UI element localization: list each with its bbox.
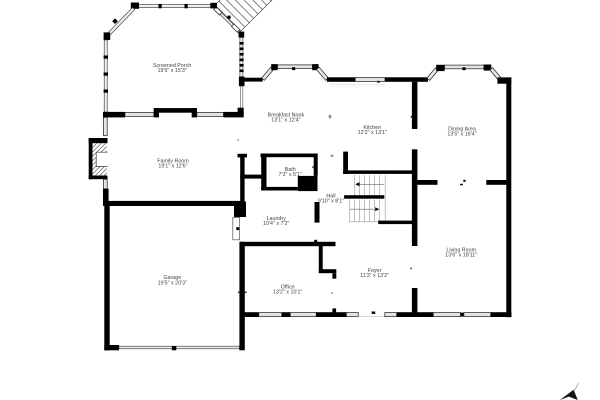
svg-text:19'5" x 20'3": 19'5" x 20'3" — [158, 280, 187, 286]
svg-text:13'2" x 10'1": 13'2" x 10'1" — [273, 289, 302, 295]
svg-text:7'3" x 5'1": 7'3" x 5'1" — [279, 172, 302, 178]
svg-text:10'4" x 7'2": 10'4" x 7'2" — [263, 221, 289, 227]
svg-text:12'2" x 13'1": 12'2" x 13'1" — [358, 130, 387, 136]
svg-text:13'1" x 12'4": 13'1" x 12'4" — [271, 117, 300, 123]
svg-text:19'1" x 12'6": 19'1" x 12'6" — [158, 164, 187, 170]
svg-text:9'10" x 8'1": 9'10" x 8'1" — [318, 198, 344, 204]
svg-text:13'6" x 18'11": 13'6" x 18'11" — [445, 252, 477, 258]
svg-text:19'5" x 15'3": 19'5" x 15'3" — [157, 68, 186, 74]
svg-text:11'3" x 13'2": 11'3" x 13'2" — [360, 273, 389, 279]
svg-text:13'5" x 16'4": 13'5" x 16'4" — [447, 132, 476, 138]
